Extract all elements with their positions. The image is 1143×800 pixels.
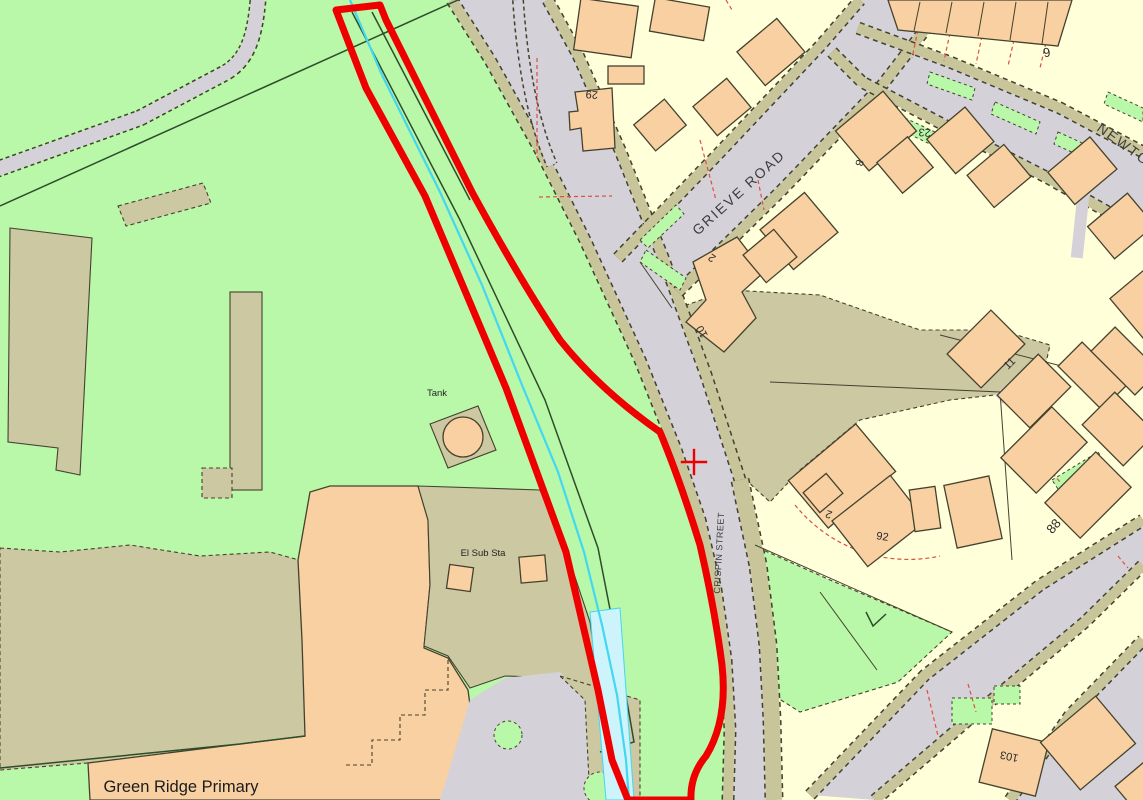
house-number: 29	[585, 88, 598, 101]
verge-green	[952, 698, 992, 724]
substation-hut	[519, 555, 547, 583]
small-khaki-plot	[202, 468, 232, 498]
building-narrow-nw	[230, 292, 262, 490]
house	[608, 66, 644, 84]
map-svg: GRIEVE ROAD NEWTON CRISPIN STREET Tank E…	[0, 0, 1143, 800]
house-number: 23	[918, 125, 931, 138]
label-school: Green Ridge Primary	[104, 778, 260, 796]
school-grounds-khaki	[0, 545, 345, 770]
map-canvas[interactable]: GRIEVE ROAD NEWTON CRISPIN STREET Tank E…	[0, 0, 1143, 800]
substation-hut	[446, 564, 473, 591]
tank-structure	[443, 417, 483, 457]
label-el-sub-sta: El Sub Sta	[461, 548, 507, 559]
verge-green	[994, 686, 1020, 704]
house-number: 92	[876, 530, 890, 544]
house	[909, 486, 941, 531]
tree-blob	[494, 721, 522, 749]
building-slab-nw	[8, 228, 92, 475]
house	[574, 0, 639, 58]
label-tank: Tank	[427, 388, 447, 399]
